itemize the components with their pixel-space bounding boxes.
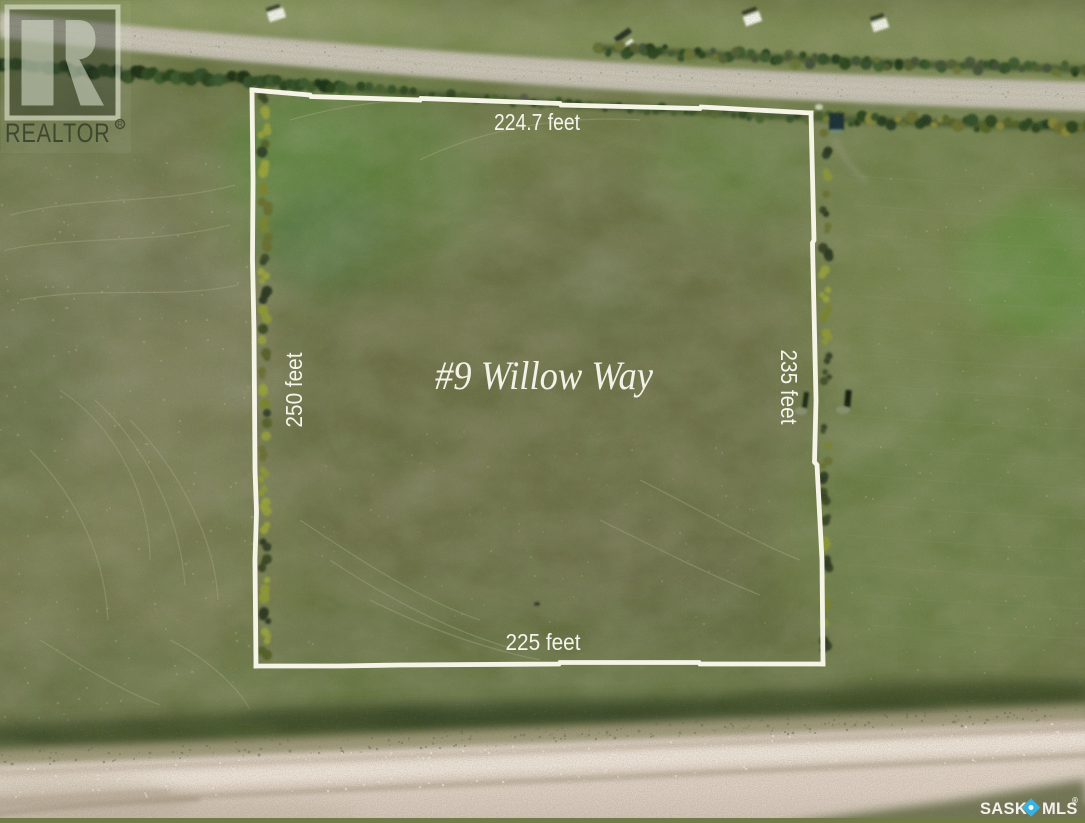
svg-text:224.7 feet: 224.7 feet [494,109,581,135]
svg-text:SASK: SASK [980,800,1027,818]
svg-text:225 feet: 225 feet [506,629,582,655]
svg-text:R: R [117,120,123,129]
svg-text:REALTOR: REALTOR [5,119,111,149]
svg-text:®: ® [1072,796,1078,805]
svg-text:#9 Willow Way: #9 Willow Way [435,353,653,398]
svg-text:250 feet: 250 feet [281,352,307,428]
svg-text:235 feet: 235 feet [776,350,802,426]
